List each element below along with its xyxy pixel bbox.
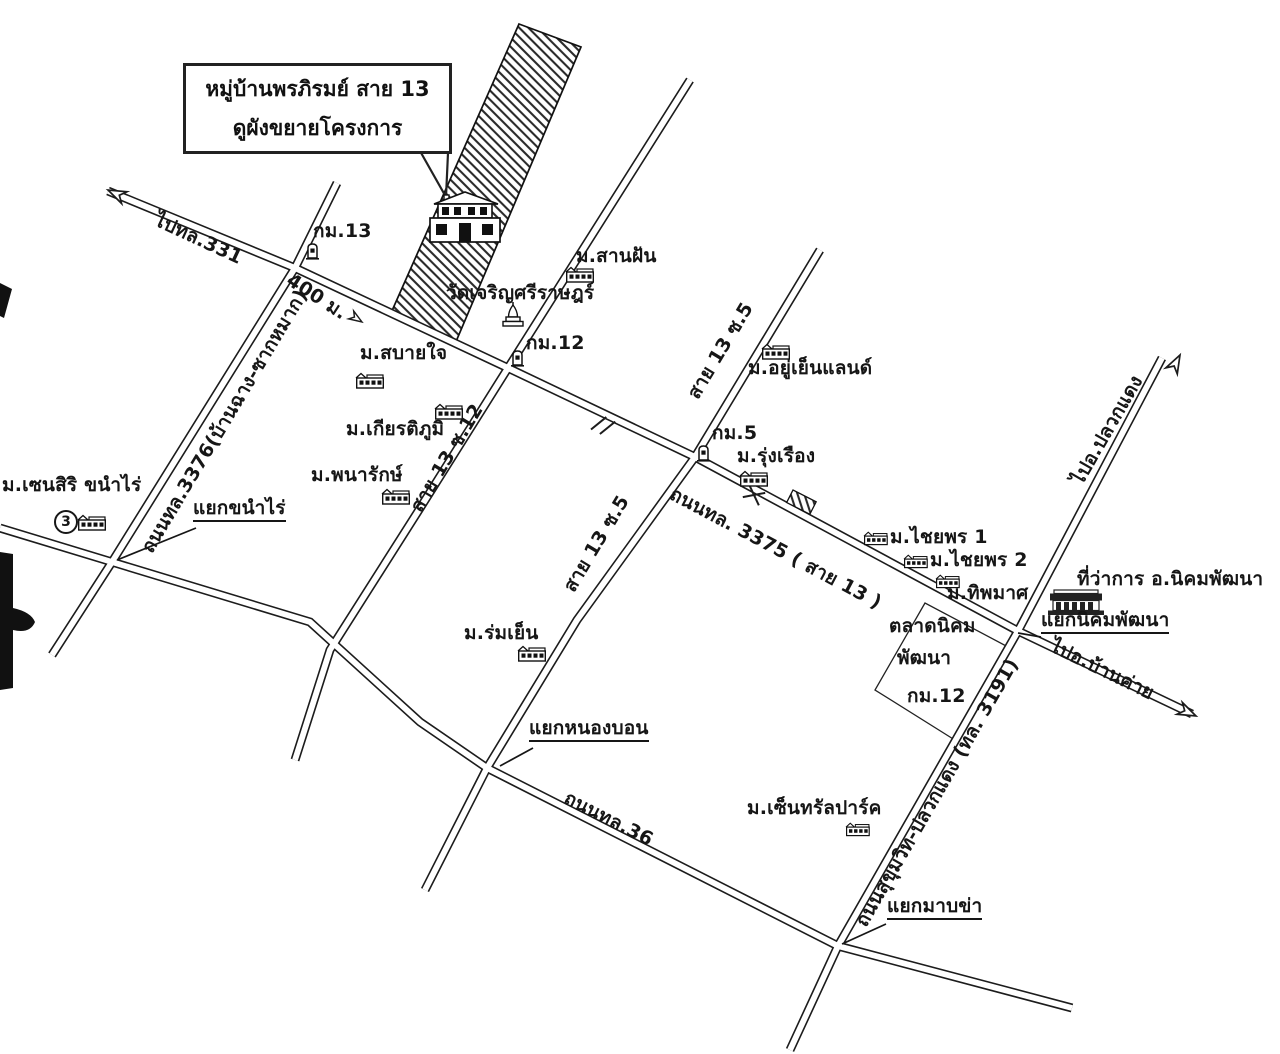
label-wat: วัดเจริญศรีราษฎร์ <box>446 283 594 304</box>
label-km13: กม.13 <box>313 221 372 242</box>
sensiri-building-icon <box>78 516 105 531</box>
temple-icon <box>503 302 523 326</box>
label-km5: กม.5 <box>712 423 757 444</box>
label-rom-yen: ม.ร่มเย็น <box>464 623 539 644</box>
label-km12: กม.12 <box>526 333 585 354</box>
sabai-jai-building-icon <box>356 374 383 389</box>
callout-line1: หมู่บ้านพรภิรมย์ สาย 13 <box>205 73 429 106</box>
label-junction-nikhom: แยกนิคมพัฒนา <box>1041 610 1169 634</box>
label-thipamat: ม.ทิพมาศ <box>947 583 1028 604</box>
label-central-park: ม.เซ็นทรัลปาร์ค <box>747 798 882 819</box>
label-chaiyaporn1: ม.ไชยพร 1 <box>890 527 988 548</box>
phanarak-building-icon <box>382 490 409 505</box>
map-graphics <box>0 0 1280 1054</box>
central-park-building-icon <box>846 823 869 835</box>
san-fan-building-icon <box>566 268 593 283</box>
rom-yen-building-icon <box>518 647 545 662</box>
circled-number-badge: 3 <box>54 510 78 534</box>
road-36-surface <box>0 528 1072 1008</box>
road-soi5-surface <box>425 250 820 890</box>
km13-milestone-icon <box>306 244 319 259</box>
label-chaiyaporn2: ม.ไชยพร 2 <box>930 550 1028 571</box>
scan-artifact-left <box>0 552 35 690</box>
arrow-400m <box>349 311 365 326</box>
label-phanarak: ม.พนารักษ์ <box>311 465 403 486</box>
road-3375-casing <box>295 268 1018 631</box>
label-km12-market: กม.12 <box>907 686 966 707</box>
label-rung-rueang: ม.รุ่งเรือง <box>737 446 815 467</box>
arrow-to-pluak-daeng <box>1166 352 1186 374</box>
project-callout-box: หมู่บ้านพรภิรมย์ สาย 13 ดูผังขยายโครงการ <box>183 63 452 154</box>
hand-drawn-location-map: หมู่บ้านพรภิรมย์ สาย 13 ดูผังขยายโครงการ… <box>0 0 1280 1054</box>
label-junction-khanam-rai: แยกขนำไร่ <box>193 498 286 522</box>
callout-line2: ดูผังขยายโครงการ <box>233 112 403 145</box>
label-junction-map-kha: แยกมาบข่า <box>887 896 982 920</box>
road-36-casing <box>0 528 1072 1008</box>
label-market-line2: พัฒนา <box>897 648 951 669</box>
label-yu-yen-land: ม.อยู่เย็นแลนด์ <box>748 358 872 379</box>
scan-artifact-top <box>0 283 12 318</box>
label-kiattiphum: ม.เกียรติภูมิ <box>346 419 444 440</box>
label-market-line1: ตลาดนิคม <box>889 616 976 637</box>
nong-bon-leader <box>500 748 533 766</box>
callout-tail <box>420 151 448 197</box>
label-junction-nong-bon: แยกหนองบอน <box>529 718 649 742</box>
km5-milestone-icon <box>697 446 710 461</box>
label-district-office: ที่ว่าการ อ.นิคมพัฒนา <box>1077 569 1263 590</box>
chaiyaporn1-building-icon <box>864 532 887 544</box>
rung-rueang-building-icon <box>740 472 767 487</box>
label-sensiri: ม.เซนสิริ ขนำไร่ <box>2 475 141 496</box>
label-san-fan: ม.สานฝัน <box>576 246 657 267</box>
km12-milestone-icon <box>511 351 524 366</box>
chaiyaporn2-building-icon <box>904 555 927 567</box>
label-sabai-jai: ม.สบายใจ <box>360 343 447 364</box>
